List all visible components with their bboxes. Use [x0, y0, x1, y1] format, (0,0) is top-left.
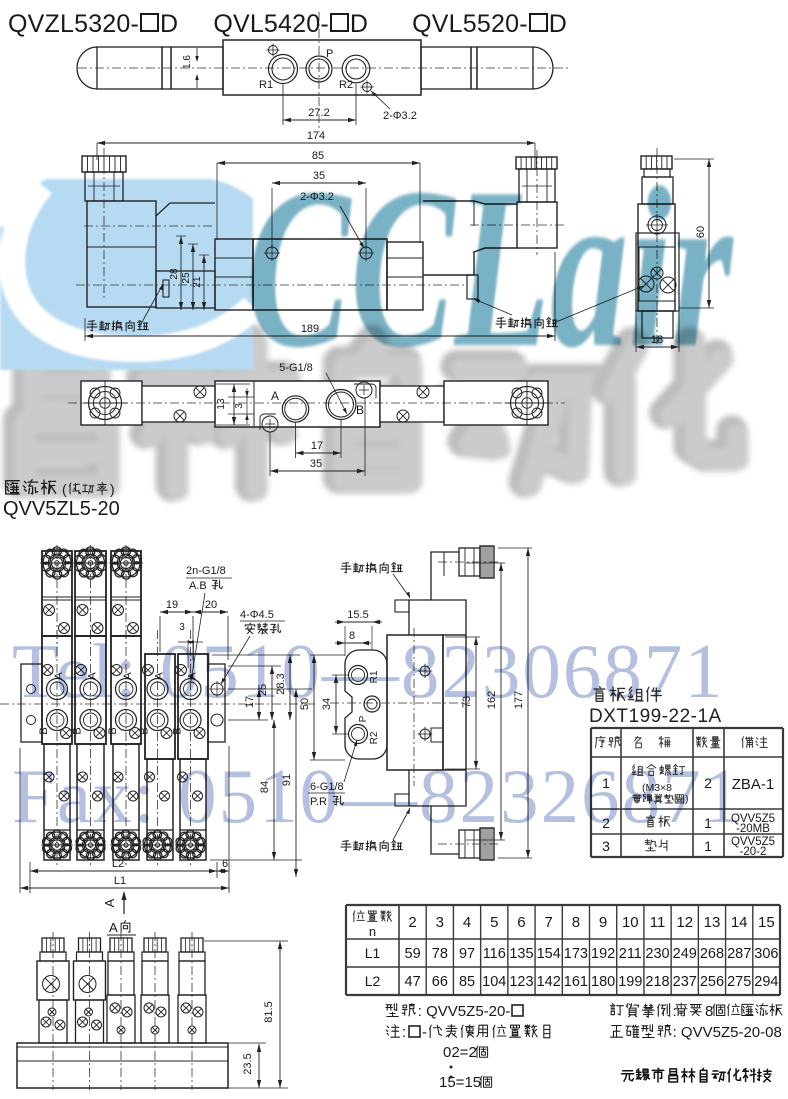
svg-text:B: B — [107, 727, 119, 734]
svg-text:P: P — [326, 48, 333, 60]
svg-text:13: 13 — [704, 914, 721, 931]
svg-text:3: 3 — [234, 403, 245, 409]
svg-text:59: 59 — [405, 946, 421, 962]
svg-text:4: 4 — [463, 914, 471, 931]
svg-text:(: ( — [62, 481, 67, 497]
svg-text:3: 3 — [436, 914, 444, 931]
svg-text:97: 97 — [459, 946, 475, 962]
svg-text:n: n — [369, 924, 376, 939]
svg-text:2: 2 — [408, 914, 416, 931]
svg-text:: QVV5Z5-20-08: : QVV5Z5-20-08 — [673, 1024, 782, 1041]
svg-text:-: - — [422, 1024, 427, 1041]
svg-text:10: 10 — [622, 914, 639, 931]
svg-text:81.5: 81.5 — [263, 1001, 275, 1022]
svg-text:6: 6 — [222, 858, 228, 870]
svg-text:B: B — [38, 727, 50, 734]
svg-text:2n-G1/8: 2n-G1/8 — [186, 565, 226, 577]
svg-text:306: 306 — [754, 946, 778, 962]
svg-text:7: 7 — [545, 914, 553, 931]
svg-text:17: 17 — [311, 440, 323, 452]
svg-text:L1: L1 — [365, 945, 381, 961]
svg-text:21: 21 — [192, 276, 203, 288]
svg-text:35: 35 — [310, 458, 322, 470]
svg-text:12: 12 — [676, 914, 693, 931]
svg-text:): ) — [110, 481, 115, 497]
svg-text:180: 180 — [591, 974, 615, 990]
svg-text:256: 256 — [700, 974, 724, 990]
svg-text:14: 14 — [731, 914, 748, 931]
svg-text:B: B — [72, 727, 84, 734]
svg-text:-20-2: -20-2 — [740, 846, 767, 858]
svg-text:173: 173 — [564, 946, 588, 962]
svg-text::: : — [673, 1003, 677, 1019]
svg-text:199: 199 — [618, 974, 642, 990]
svg-text:15=15: 15=15 — [439, 1074, 481, 1091]
svg-text:: QVV5Z5-20-: : QVV5Z5-20- — [418, 1003, 511, 1020]
svg-text:L1: L1 — [114, 875, 126, 887]
svg-text:23.5: 23.5 — [242, 1053, 254, 1074]
svg-text:02=2: 02=2 — [443, 1044, 477, 1061]
svg-text:20: 20 — [205, 599, 217, 611]
svg-text:A: A — [102, 898, 117, 907]
svg-text:27.2: 27.2 — [308, 107, 329, 119]
svg-text:B: B — [356, 403, 364, 417]
svg-text:8: 8 — [572, 914, 580, 931]
svg-text:104: 104 — [482, 974, 506, 990]
svg-text:B: B — [139, 727, 151, 734]
svg-text:P: P — [358, 715, 369, 722]
svg-text:1: 1 — [704, 838, 712, 854]
svg-text:25: 25 — [181, 272, 192, 284]
svg-text:218: 218 — [645, 974, 669, 990]
svg-text:A.B: A.B — [189, 580, 207, 592]
svg-text:78: 78 — [432, 946, 448, 962]
svg-text::: : — [402, 1024, 406, 1041]
svg-text:47: 47 — [405, 974, 421, 990]
svg-text:2-Φ3.2: 2-Φ3.2 — [383, 110, 417, 122]
svg-text:13: 13 — [216, 398, 227, 410]
svg-text:3: 3 — [602, 838, 610, 854]
svg-text:211: 211 — [619, 946, 642, 962]
svg-text:275: 275 — [727, 974, 751, 990]
svg-text:L2: L2 — [112, 858, 124, 870]
svg-text:4-Φ4.5: 4-Φ4.5 — [240, 609, 274, 621]
svg-text:5: 5 — [490, 914, 498, 931]
svg-text:A: A — [109, 920, 118, 935]
svg-text:R1: R1 — [259, 79, 273, 91]
svg-text:L2: L2 — [365, 973, 381, 989]
svg-text:85: 85 — [459, 974, 475, 990]
svg-text:19: 19 — [166, 599, 178, 611]
svg-text:135: 135 — [509, 946, 533, 962]
svg-text:66: 66 — [432, 974, 448, 990]
svg-text:287: 287 — [727, 946, 751, 962]
svg-text:249: 249 — [673, 946, 697, 962]
svg-text:B: B — [172, 727, 184, 734]
svg-text:161: 161 — [564, 974, 588, 990]
svg-text:230: 230 — [645, 946, 669, 962]
svg-text:11: 11 — [650, 914, 666, 931]
svg-text:116: 116 — [483, 946, 506, 962]
svg-text:294: 294 — [754, 974, 778, 990]
svg-text:192: 192 — [591, 946, 615, 962]
svg-text:142: 142 — [537, 974, 561, 990]
svg-text:154: 154 — [537, 946, 561, 962]
svg-text:R2: R2 — [369, 731, 380, 744]
svg-text:1.6: 1.6 — [182, 55, 193, 69]
svg-text:237: 237 — [673, 974, 697, 990]
svg-text:28: 28 — [169, 268, 180, 280]
svg-text:15.5: 15.5 — [347, 609, 368, 621]
svg-text:6: 6 — [517, 914, 525, 931]
svg-text:268: 268 — [700, 946, 724, 962]
svg-text:123: 123 — [509, 974, 533, 990]
svg-text:R2: R2 — [339, 79, 353, 91]
svg-text:15: 15 — [758, 914, 775, 931]
svg-text:8: 8 — [705, 1003, 713, 1020]
svg-text:9: 9 — [599, 914, 607, 931]
